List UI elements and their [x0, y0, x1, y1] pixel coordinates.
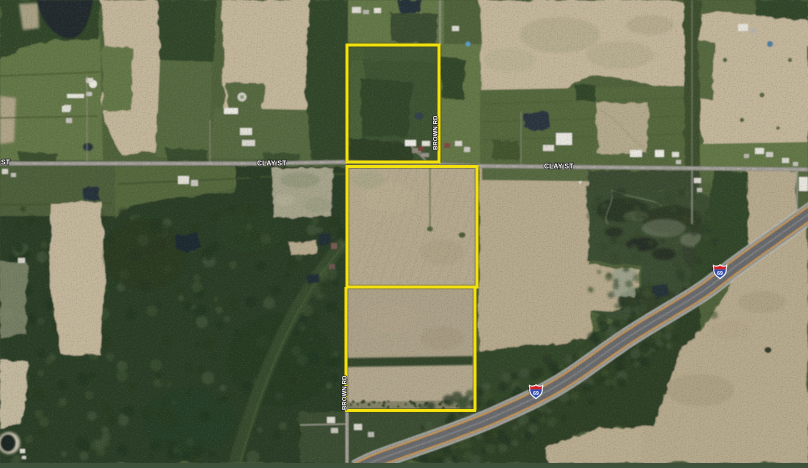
svg-text:CLAY ST: CLAY ST	[257, 161, 287, 168]
svg-text:69: 69	[533, 391, 539, 397]
svg-text:BROWN RD: BROWN RD	[434, 115, 440, 150]
svg-text:BROWN RD: BROWN RD	[343, 375, 349, 410]
svg-text:CLAY ST: CLAY ST	[544, 164, 574, 171]
svg-text:69: 69	[717, 271, 723, 277]
svg-text:ST: ST	[1, 160, 11, 167]
